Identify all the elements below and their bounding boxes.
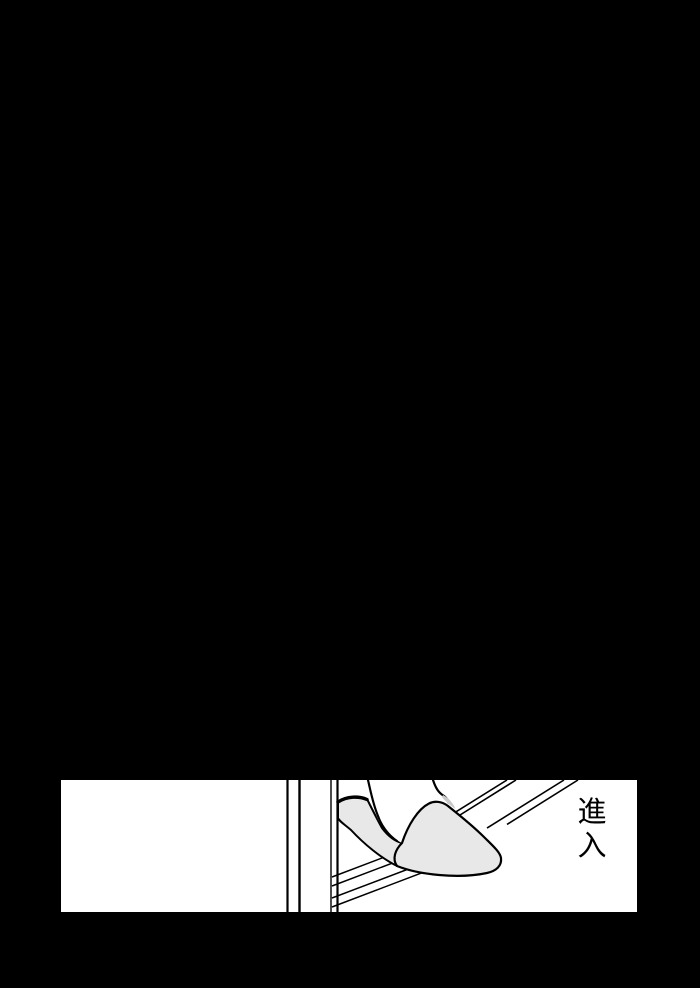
panel-divider-lines (288, 780, 300, 912)
panel-caption: 進入 (575, 796, 605, 864)
step-edge-lines-upper (450, 780, 578, 828)
door-frame-lines (331, 780, 338, 912)
panel-strip: 進入 (61, 780, 637, 912)
doorway-panel-artwork (61, 780, 637, 912)
manga-page: { "colors": { "page_background": "#00000… (0, 0, 700, 988)
